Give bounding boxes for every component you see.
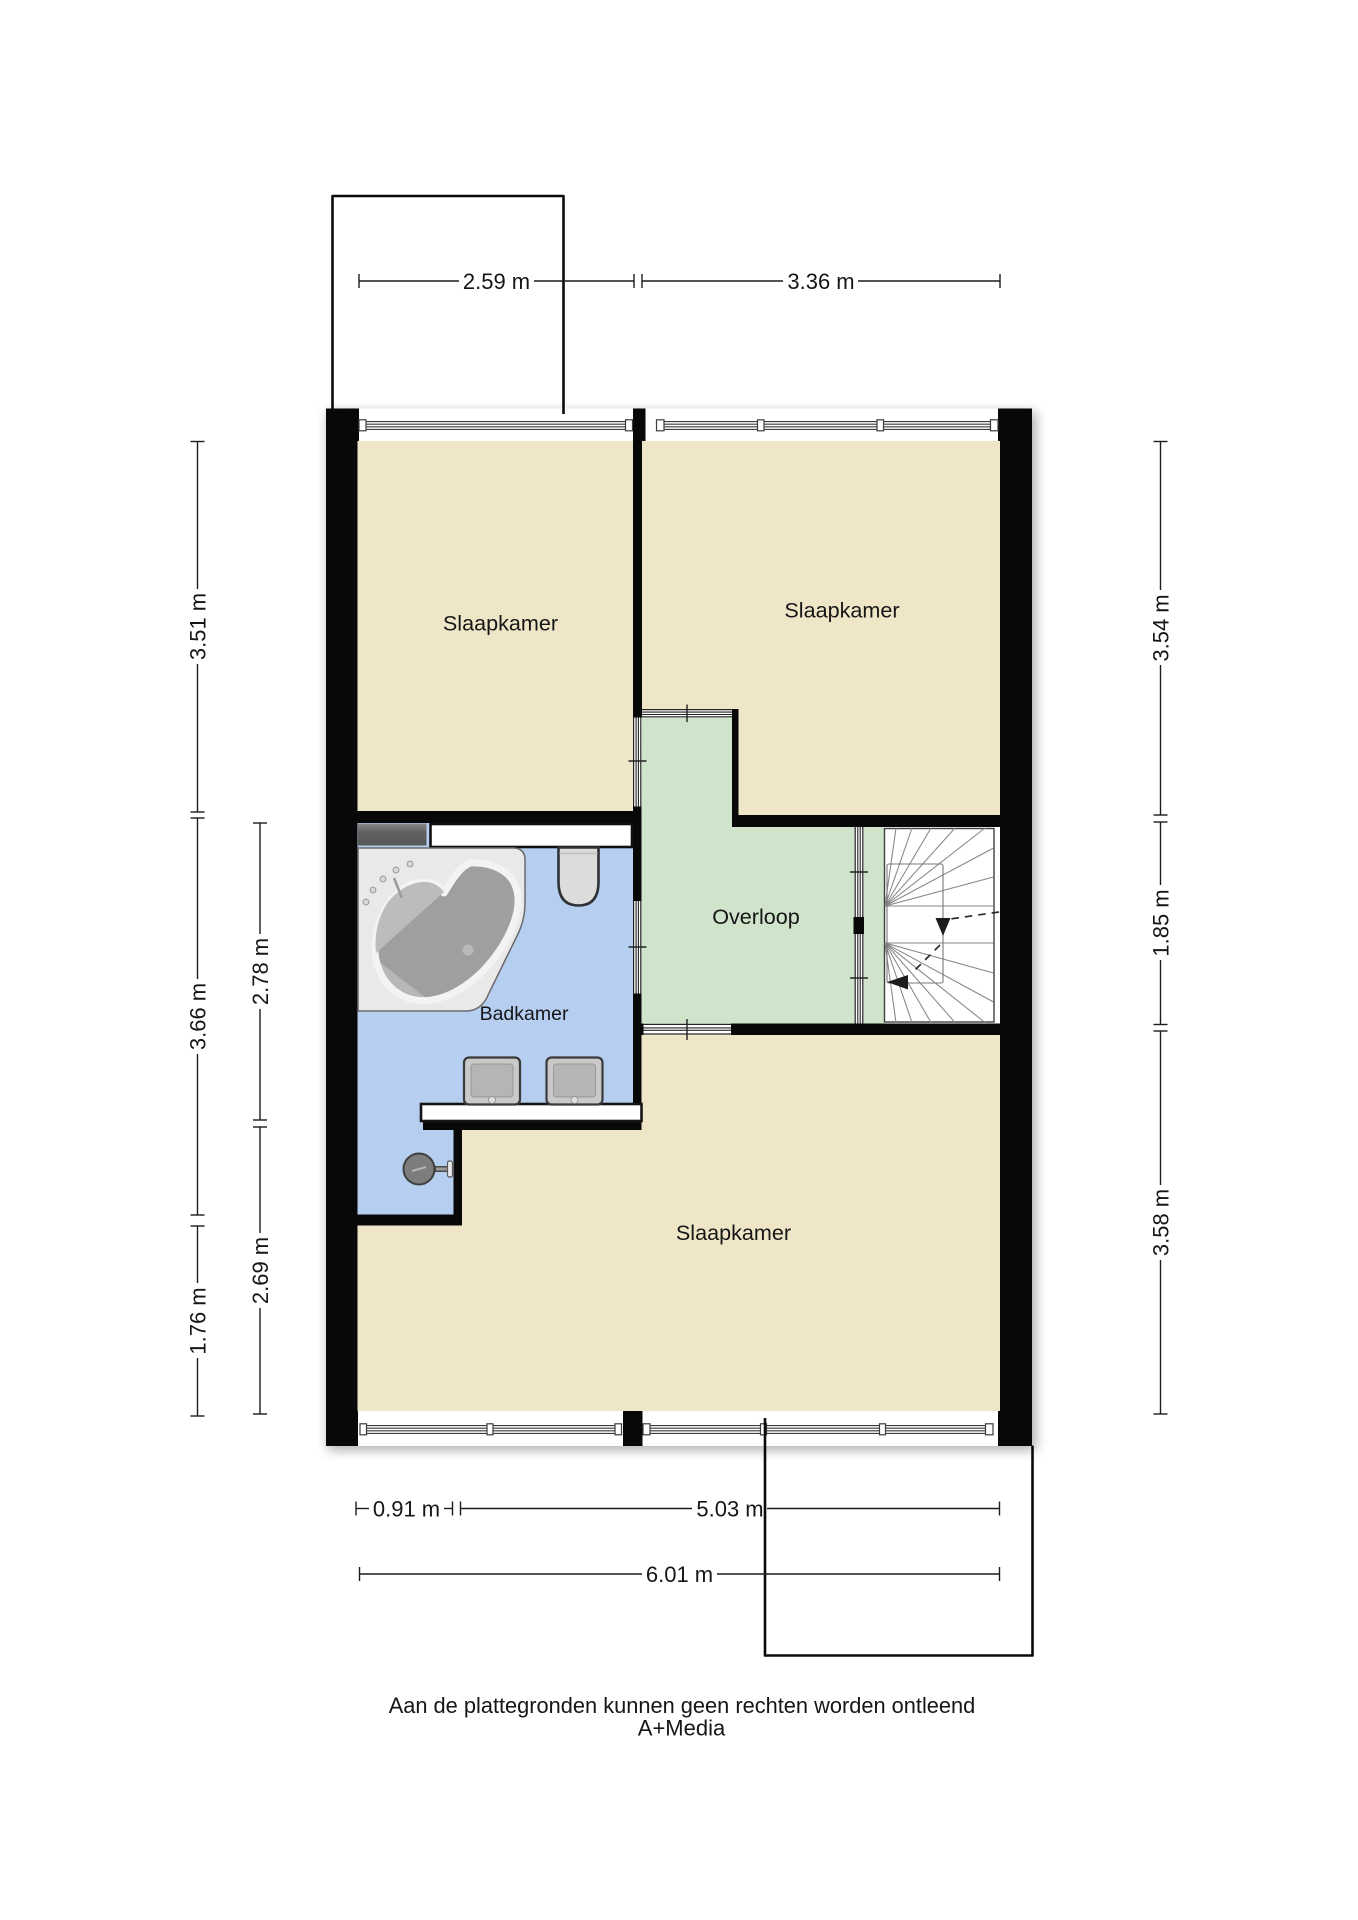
svg-text:3.66 m: 3.66 m (186, 983, 211, 1050)
svg-text:5.03 m: 5.03 m (696, 1497, 763, 1522)
svg-text:Slaapkamer: Slaapkamer (443, 611, 558, 636)
svg-text:2.59 m: 2.59 m (463, 269, 530, 294)
svg-text:0.91 m: 0.91 m (373, 1497, 440, 1522)
svg-text:Slaapkamer: Slaapkamer (784, 598, 899, 623)
svg-text:2.69 m: 2.69 m (248, 1237, 273, 1304)
svg-text:Slaapkamer: Slaapkamer (676, 1220, 791, 1245)
svg-text:6.01 m: 6.01 m (646, 1562, 713, 1587)
svg-text:3.36 m: 3.36 m (787, 269, 854, 294)
svg-text:3.54 m: 3.54 m (1149, 594, 1174, 661)
svg-text:Badkamer: Badkamer (480, 1003, 569, 1025)
svg-text:1.85 m: 1.85 m (1149, 889, 1174, 956)
svg-text:Aan de plattegronden kunnen ge: Aan de plattegronden kunnen geen rechten… (389, 1693, 976, 1718)
svg-text:1.76 m: 1.76 m (186, 1287, 211, 1354)
svg-text:3.51 m: 3.51 m (186, 593, 211, 660)
svg-text:2.78 m: 2.78 m (248, 938, 273, 1005)
svg-text:3.58 m: 3.58 m (1149, 1189, 1174, 1256)
svg-text:A+Media: A+Media (638, 1716, 726, 1741)
svg-text:Overloop: Overloop (712, 904, 800, 929)
